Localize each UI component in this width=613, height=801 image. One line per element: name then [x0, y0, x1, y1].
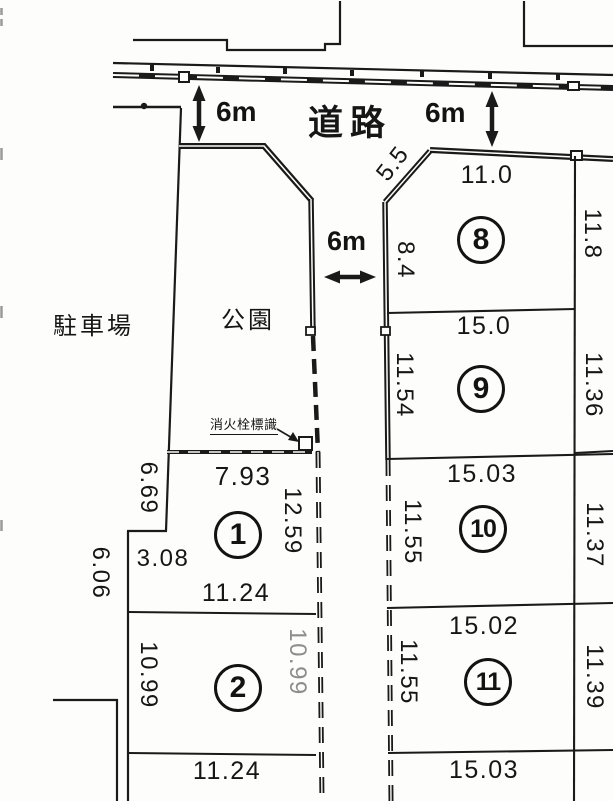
land-plot-map: 道路 公園 駐車場 消火栓標識 6m 6m 6m 5.5 8 11.0 8.4 …	[0, 0, 613, 801]
road-label: 道路	[308, 95, 392, 146]
dim-plot2-right: 10.99	[283, 612, 311, 712]
dim-plot1-step: 3.08	[133, 545, 193, 573]
fire-hydrant-label: 消火栓標識	[210, 414, 278, 435]
dim-plot9-top: 15.0	[447, 312, 521, 341]
road-width-top-right: 6m	[425, 97, 465, 129]
plot-8-number: 8	[457, 216, 505, 264]
dim-plot11-right: 11.39	[580, 627, 608, 727]
dim-plot10-left: 11.55	[398, 482, 426, 582]
plot-9-number: 9	[457, 365, 505, 413]
dim-plot1-left-upper: 6.69	[134, 438, 162, 538]
width-arrow-top-right	[486, 91, 499, 147]
dim-plot2-bottom: 11.24	[188, 757, 266, 786]
dim-plot1-bottom: 11.24	[197, 579, 275, 608]
width-arrow-top-left	[193, 85, 206, 142]
dim-plot9-left: 11.54	[390, 335, 418, 435]
road-marker-box	[179, 72, 189, 82]
dim-plot8-left: 8.4	[391, 220, 419, 300]
dim-plot8-top: 11.0	[450, 161, 524, 190]
dim-plot1-right: 12.59	[278, 471, 306, 571]
top-road-edge	[113, 63, 613, 90]
dim-plot11-top: 15.02	[444, 612, 524, 641]
road-width-top-left: 6m	[216, 96, 256, 128]
dim-plot9-right: 11.36	[579, 335, 607, 435]
parking-label: 駐車場	[53, 306, 134, 341]
plot-1-number: 1	[214, 511, 262, 559]
plot-1-2-boundaries	[53, 452, 316, 801]
width-arrow-center	[324, 271, 376, 284]
dim-plot11-bottom: 15.03	[444, 756, 524, 785]
plot8-frontage	[430, 150, 613, 160]
dim-plot1-outer-left: 6.06	[86, 523, 114, 623]
dim-plot2-left: 10.99	[134, 625, 162, 725]
park-label: 公園	[221, 300, 275, 335]
dim-plot10-right: 11.37	[580, 485, 608, 585]
dim-plot8-right: 11.8	[578, 184, 606, 284]
road-width-center: 6m	[327, 226, 366, 257]
plot-2-number: 2	[214, 664, 262, 712]
plot-11-number: 11	[464, 658, 512, 706]
road-marker-box	[568, 82, 579, 90]
building-outlines	[133, 1, 613, 50]
dim-plot1-top: 7.93	[207, 461, 279, 492]
plot-10-number: 10	[459, 505, 507, 553]
fire-hydrant-marker	[277, 429, 312, 450]
dim-plot10-top: 15.03	[442, 460, 522, 489]
dim-plot11-left: 11.55	[394, 622, 422, 722]
